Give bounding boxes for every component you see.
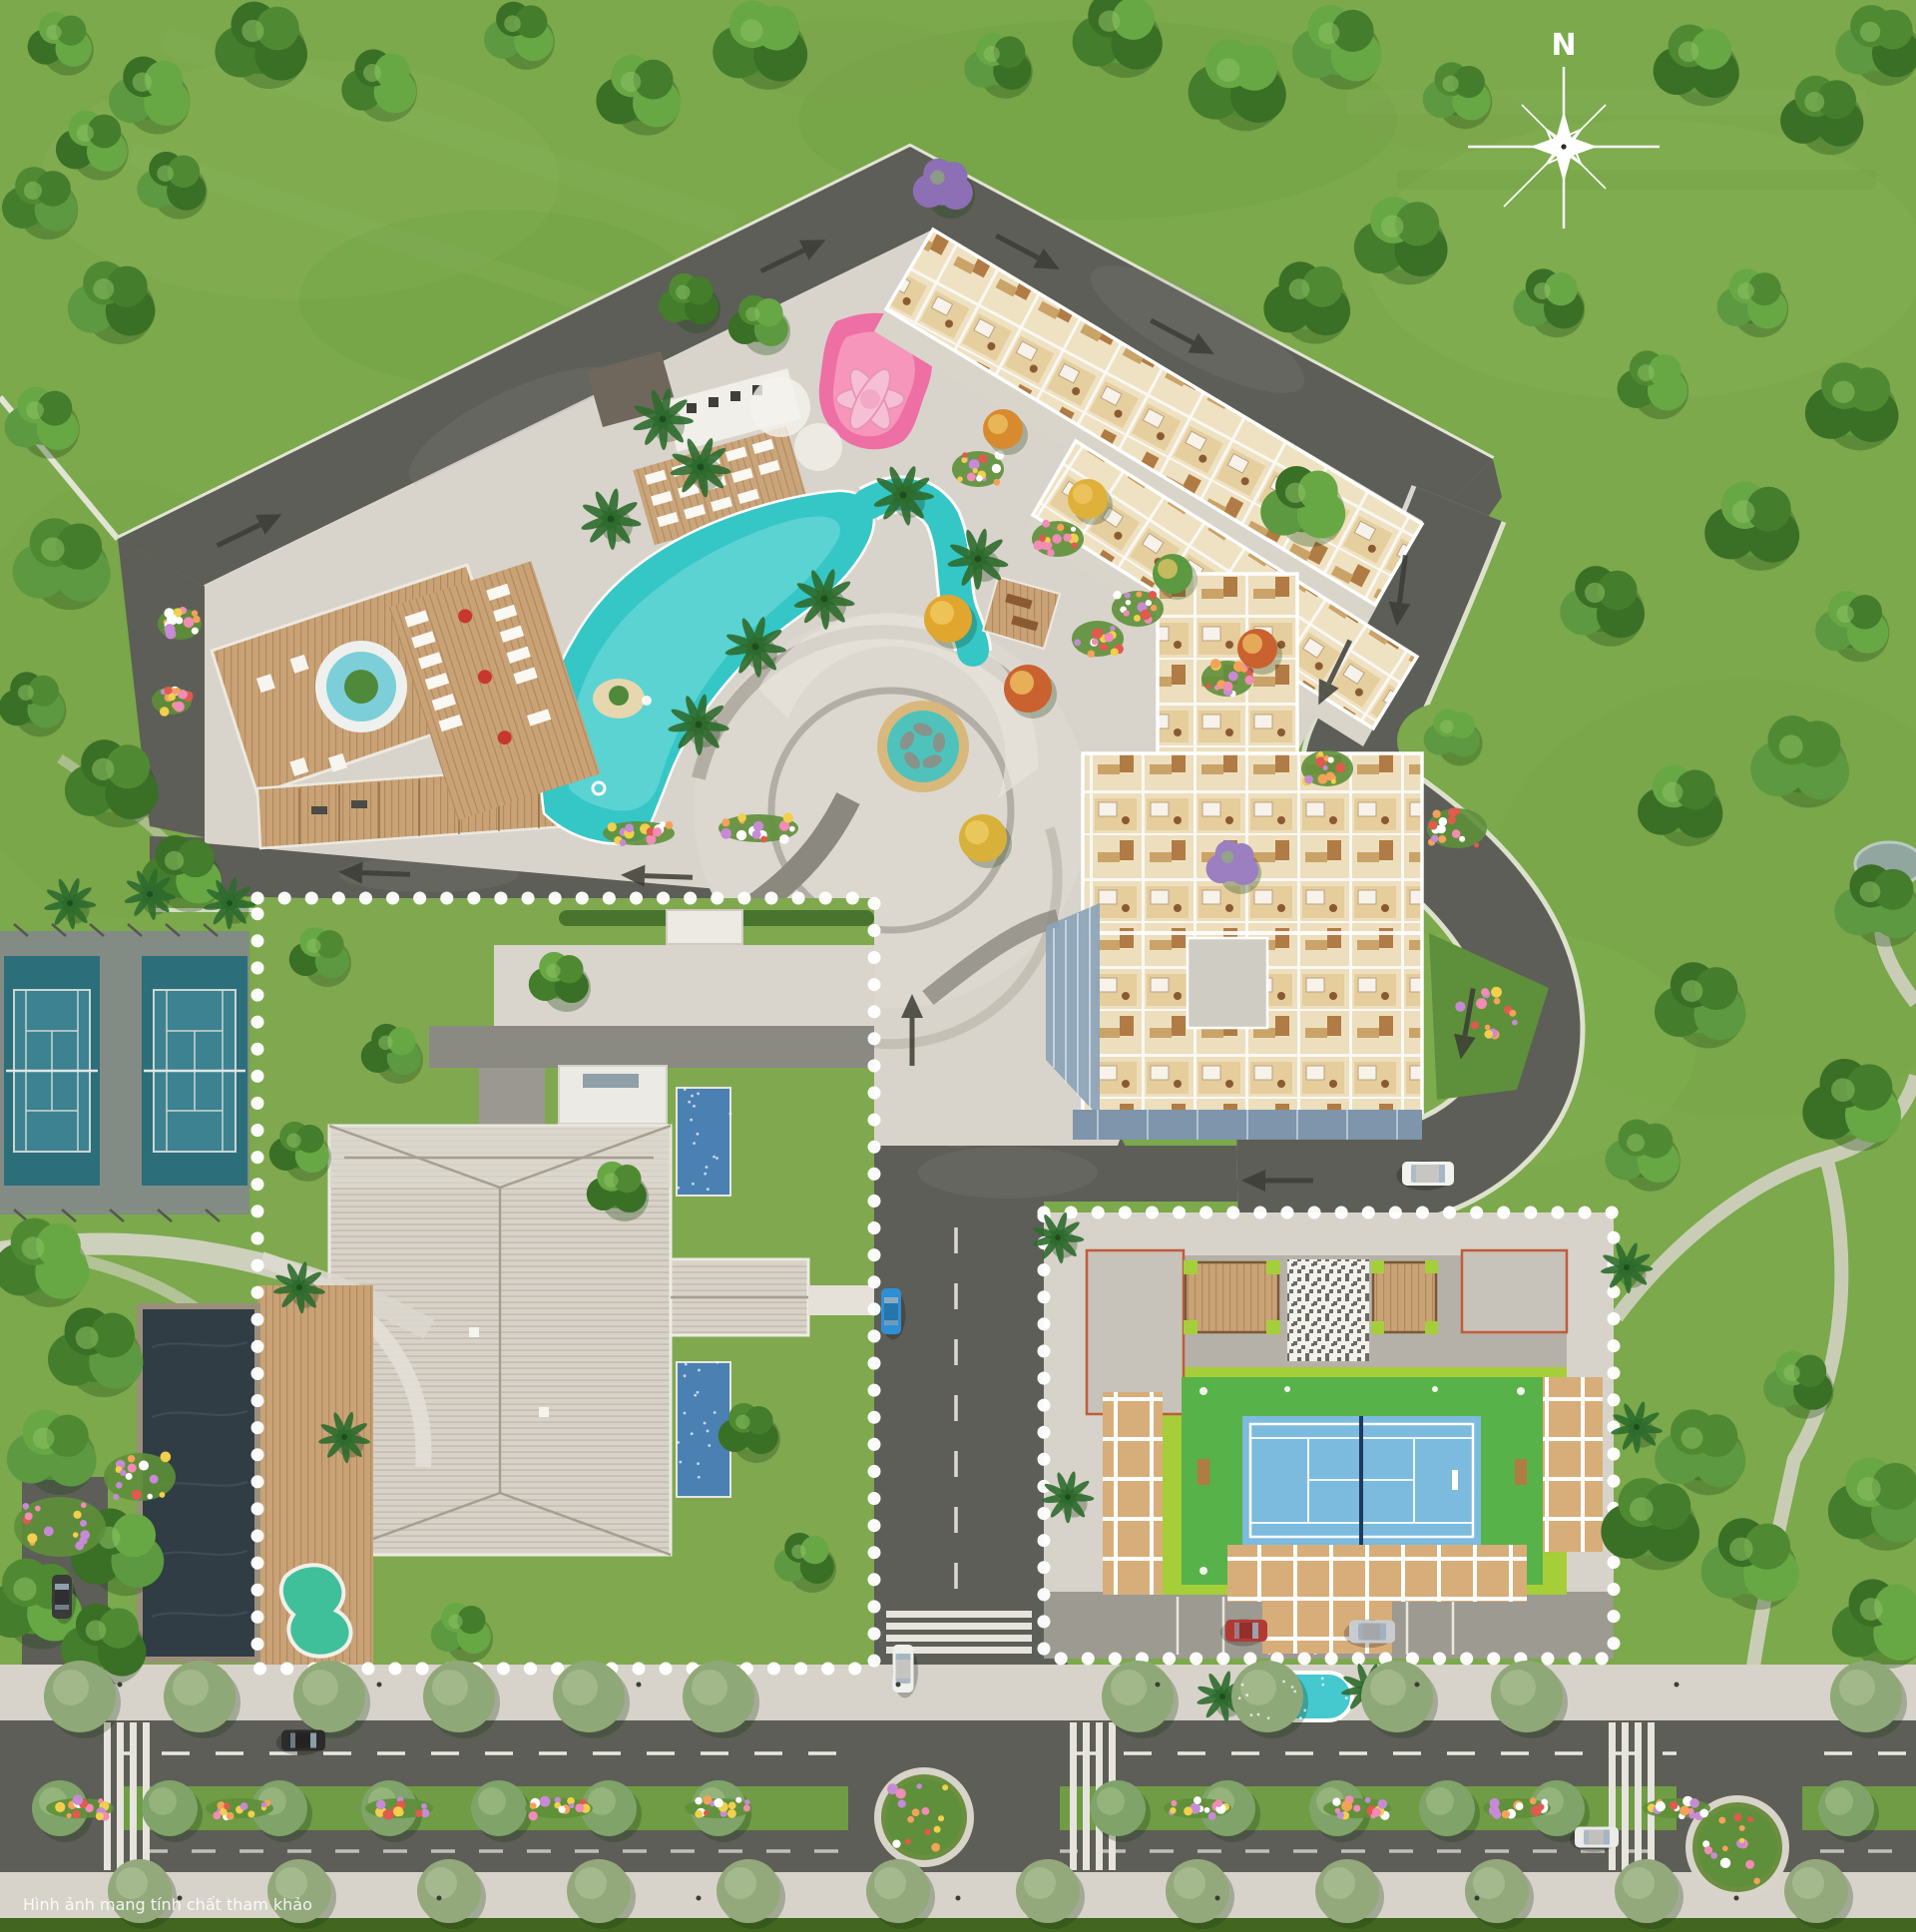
entry-canopy bbox=[667, 910, 742, 944]
flower-bed bbox=[1697, 1807, 1777, 1887]
flower-bed bbox=[886, 1779, 962, 1855]
central-fountain bbox=[877, 701, 969, 792]
compass-north-label: N bbox=[1551, 28, 1576, 63]
car bbox=[1396, 1161, 1454, 1191]
skylight bbox=[583, 1074, 639, 1088]
right-parcel bbox=[1044, 1212, 1614, 1659]
qr-roof-pad bbox=[1286, 1258, 1370, 1362]
clubhouse-drive bbox=[429, 1026, 874, 1068]
flower-bed bbox=[1301, 750, 1353, 786]
entry-walk bbox=[808, 1285, 874, 1315]
tennis-court bbox=[142, 956, 247, 1186]
site-plan-svg: N Hình ảnh mang tính chất tham khảo bbox=[0, 0, 1916, 1932]
flower-bed bbox=[14, 1497, 106, 1557]
tennis-court bbox=[4, 956, 100, 1186]
drive-ramp bbox=[479, 1068, 545, 1126]
flower-bed bbox=[1112, 591, 1164, 627]
site-plan-render: N Hình ảnh mang tính chất tham khảo bbox=[0, 0, 1916, 1932]
reference-caption: Hình ảnh mang tính chất tham khảo bbox=[23, 1895, 312, 1914]
